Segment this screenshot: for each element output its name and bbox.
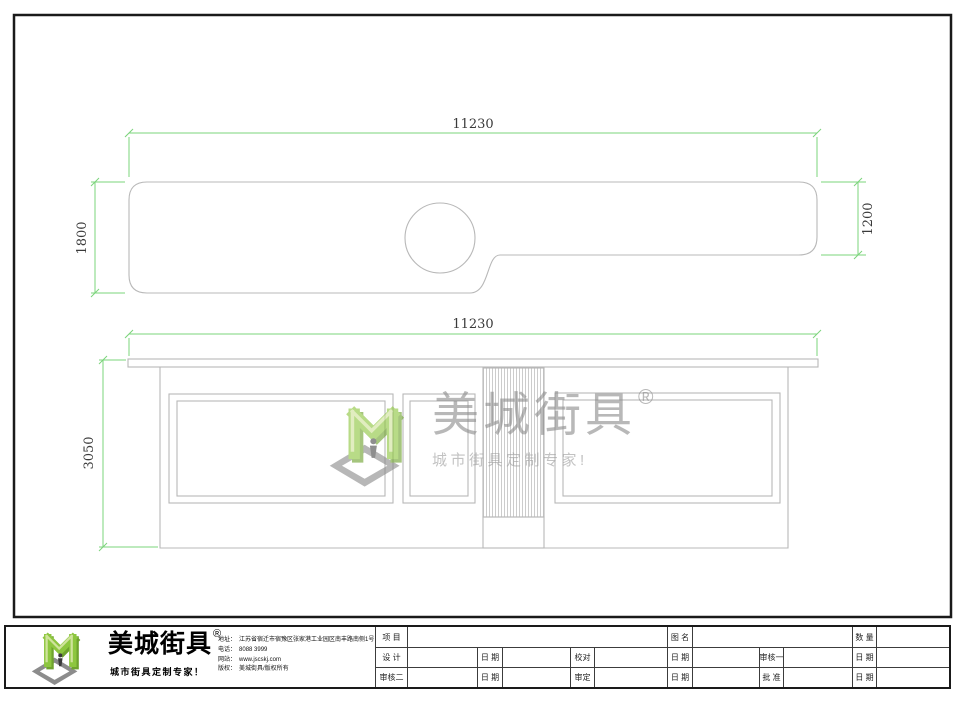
elevation-roof [128, 359, 818, 367]
cell-date-value [503, 648, 571, 668]
footer-brand-text: 美城街具 [108, 628, 212, 660]
cell-date-label: 日 期 [853, 668, 877, 687]
plan-roof-outline [129, 182, 817, 293]
column-slats [483, 368, 544, 517]
plan-width-dimension-text: 11230 [452, 117, 493, 132]
cell-drawing-name-value [693, 627, 853, 648]
plan-depth-left-dimension [91, 178, 125, 297]
cell-date-value [693, 668, 760, 687]
cell-date-value [877, 648, 949, 668]
plan-depth-left-dimension-text: 1800 [75, 221, 90, 254]
elevation-height-dimension-text: 3050 [82, 436, 97, 469]
elevation-width-dimension [125, 330, 821, 356]
cell-project-label: 项 目 [376, 627, 408, 648]
company-website-line: 网站： www.jscskj.com [218, 656, 374, 666]
copyright-label: 版权： [218, 665, 236, 675]
cell-approve-label: 审定 [571, 668, 595, 687]
company-info: 地址： 江苏省宿迁市宿豫区张家港工业园区南丰路南侧1号 电话： 8088 399… [218, 636, 374, 675]
address-label: 地址： [218, 636, 236, 646]
website-label: 网站： [218, 656, 236, 666]
cell-ratify-value [784, 668, 853, 687]
company-address-line: 地址： 江苏省宿迁市宿豫区张家港工业园区南丰路南侧1号 [218, 636, 374, 646]
company-copyright-line: 版权： 美城街具/版权所有 [218, 665, 374, 675]
footer-brand-tagline: 城市街具定制专家！ [110, 665, 205, 678]
cell-proofread-label: 校对 [571, 648, 595, 668]
phone-value: 8088 3999 [239, 646, 267, 656]
cell-date-label: 日 期 [478, 668, 503, 687]
cell-ratify-label: 批 准 [760, 668, 784, 687]
ad-panel-left-outer [169, 394, 393, 503]
cell-reviewer2-value [408, 668, 478, 687]
cell-quantity-value [877, 627, 949, 648]
cell-date-value [877, 668, 949, 687]
ad-panel-left-inner [177, 401, 385, 496]
website-value: www.jscskj.com [239, 656, 281, 666]
cell-date-label: 日 期 [478, 648, 503, 668]
phone-label: 电话： [218, 646, 236, 656]
address-value: 江苏省宿迁市宿豫区张家港工业园区南丰路南侧1号 [239, 636, 374, 646]
cell-date-label: 日 期 [668, 648, 693, 668]
cad-drawing-canvas: 11230 1800 1200 11230 [0, 0, 960, 704]
plan-width-dimension [125, 129, 821, 177]
cell-design-label: 设 计 [376, 648, 408, 668]
ad-panel-right-outer [555, 393, 780, 503]
elevation-width-dimension-text: 11230 [452, 317, 493, 332]
cell-project-value [408, 627, 668, 648]
footer-logo-icon [18, 628, 106, 685]
cell-reviewer1-label: 审核一 [760, 648, 784, 668]
title-block: 美城街具 ® 城市街具定制专家！ 地址： 江苏省宿迁市宿豫区张家港工业园区南丰路… [4, 625, 951, 689]
cell-quantity-label: 数 量 [853, 627, 877, 648]
elevation-view [128, 359, 818, 548]
cell-date-value [693, 648, 760, 668]
cell-approve-value [595, 668, 668, 687]
cell-date-label: 日 期 [668, 668, 693, 687]
cell-date-label: 日 期 [853, 648, 877, 668]
title-block-table: 项 目 图 名 数 量 设 计 日 期 校对 日 期 审核一 日 期 审核二 日… [375, 627, 949, 687]
cell-design-value [408, 648, 478, 668]
cell-proofread-value [595, 648, 668, 668]
cell-reviewer1-value [784, 648, 853, 668]
ad-panel-right-inner [563, 400, 772, 496]
plan-depth-right-dimension-text: 1200 [861, 202, 876, 235]
drawing-sheet: 11230 1800 1200 11230 [0, 0, 960, 704]
plan-skylight-circle [405, 203, 475, 273]
plan-view [129, 182, 817, 293]
cell-drawing-name-label: 图 名 [668, 627, 693, 648]
elevation-height-dimension [99, 356, 158, 551]
panel-middle-outer [403, 394, 475, 503]
cell-reviewer2-label: 审核二 [376, 668, 408, 687]
cell-date-value [503, 668, 571, 687]
plan-depth-right-dimension [821, 178, 866, 259]
company-phone-line: 电话： 8088 3999 [218, 646, 374, 656]
column-base [483, 517, 544, 548]
panel-middle-inner [410, 401, 468, 496]
copyright-value: 美城街具/版权所有 [239, 665, 289, 675]
